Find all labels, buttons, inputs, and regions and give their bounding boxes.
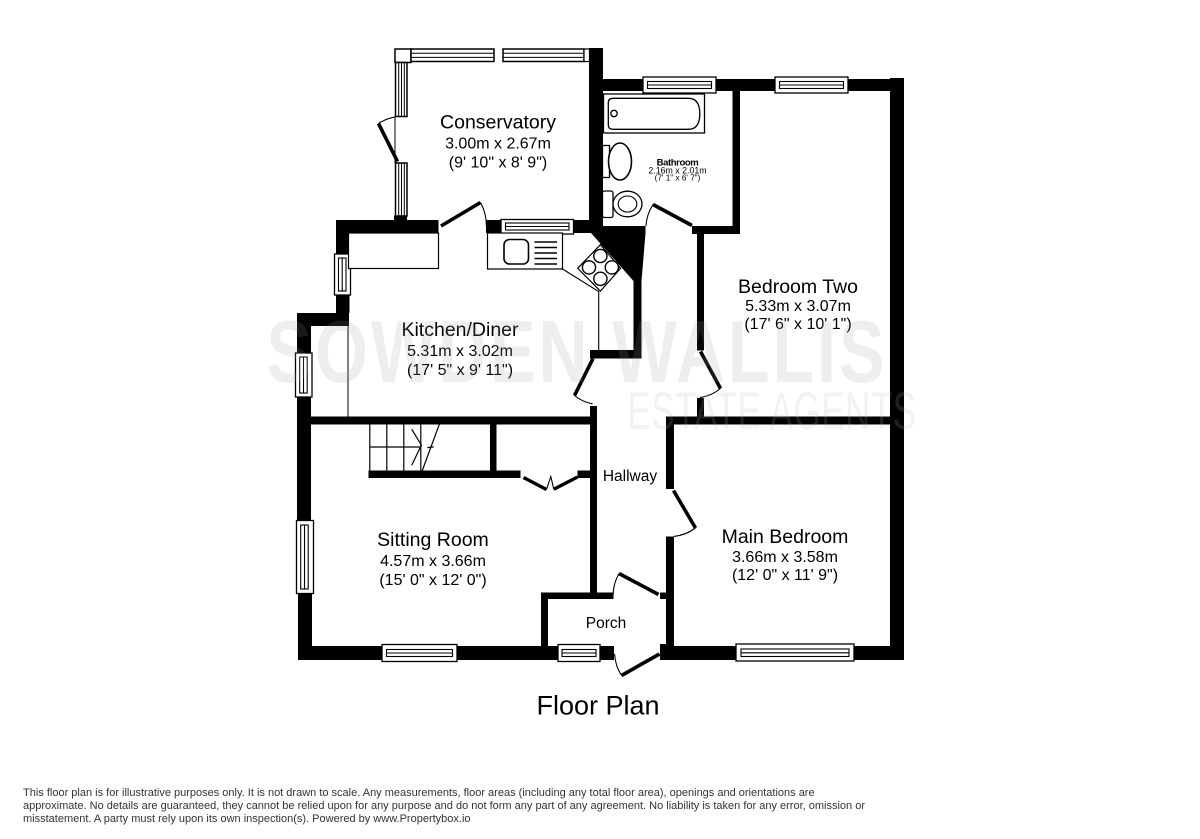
svg-text:4.57m x 3.66m: 4.57m x 3.66m <box>380 553 486 570</box>
svg-text:Floor Plan: Floor Plan <box>536 691 659 721</box>
svg-text:Sitting Room: Sitting Room <box>377 529 489 551</box>
svg-text:misstatement. A party must rel: misstatement. A party must rely upon its… <box>23 813 471 825</box>
svg-text:(9' 10" x 8' 9"): (9' 10" x 8' 9") <box>449 155 547 172</box>
svg-text:3.66m x 3.58m: 3.66m x 3.58m <box>732 549 838 566</box>
svg-text:This floor plan is for illustr: This floor plan is for illustrative purp… <box>23 787 815 799</box>
svg-text:3.00m x 2.67m: 3.00m x 2.67m <box>445 136 551 153</box>
svg-text:(15' 0" x 12' 0"): (15' 0" x 12' 0") <box>379 572 486 589</box>
svg-text:Porch: Porch <box>586 615 627 632</box>
svg-text:approximate. No details are gu: approximate. No details are guaranteed, … <box>23 800 865 812</box>
svg-text:(12' 0" x 11' 9"): (12' 0" x 11' 9") <box>732 567 838 584</box>
svg-text:Hallway: Hallway <box>603 468 658 485</box>
svg-text:(7' 1" x 6' 7"): (7' 1" x 6' 7") <box>655 174 701 183</box>
svg-text:Conservatory: Conservatory <box>440 112 556 134</box>
svg-text:Bedroom Two: Bedroom Two <box>738 276 858 298</box>
svg-text:Main Bedroom: Main Bedroom <box>722 526 849 548</box>
svg-text:ESTATE AGENTS: ESTATE AGENTS <box>627 383 916 441</box>
